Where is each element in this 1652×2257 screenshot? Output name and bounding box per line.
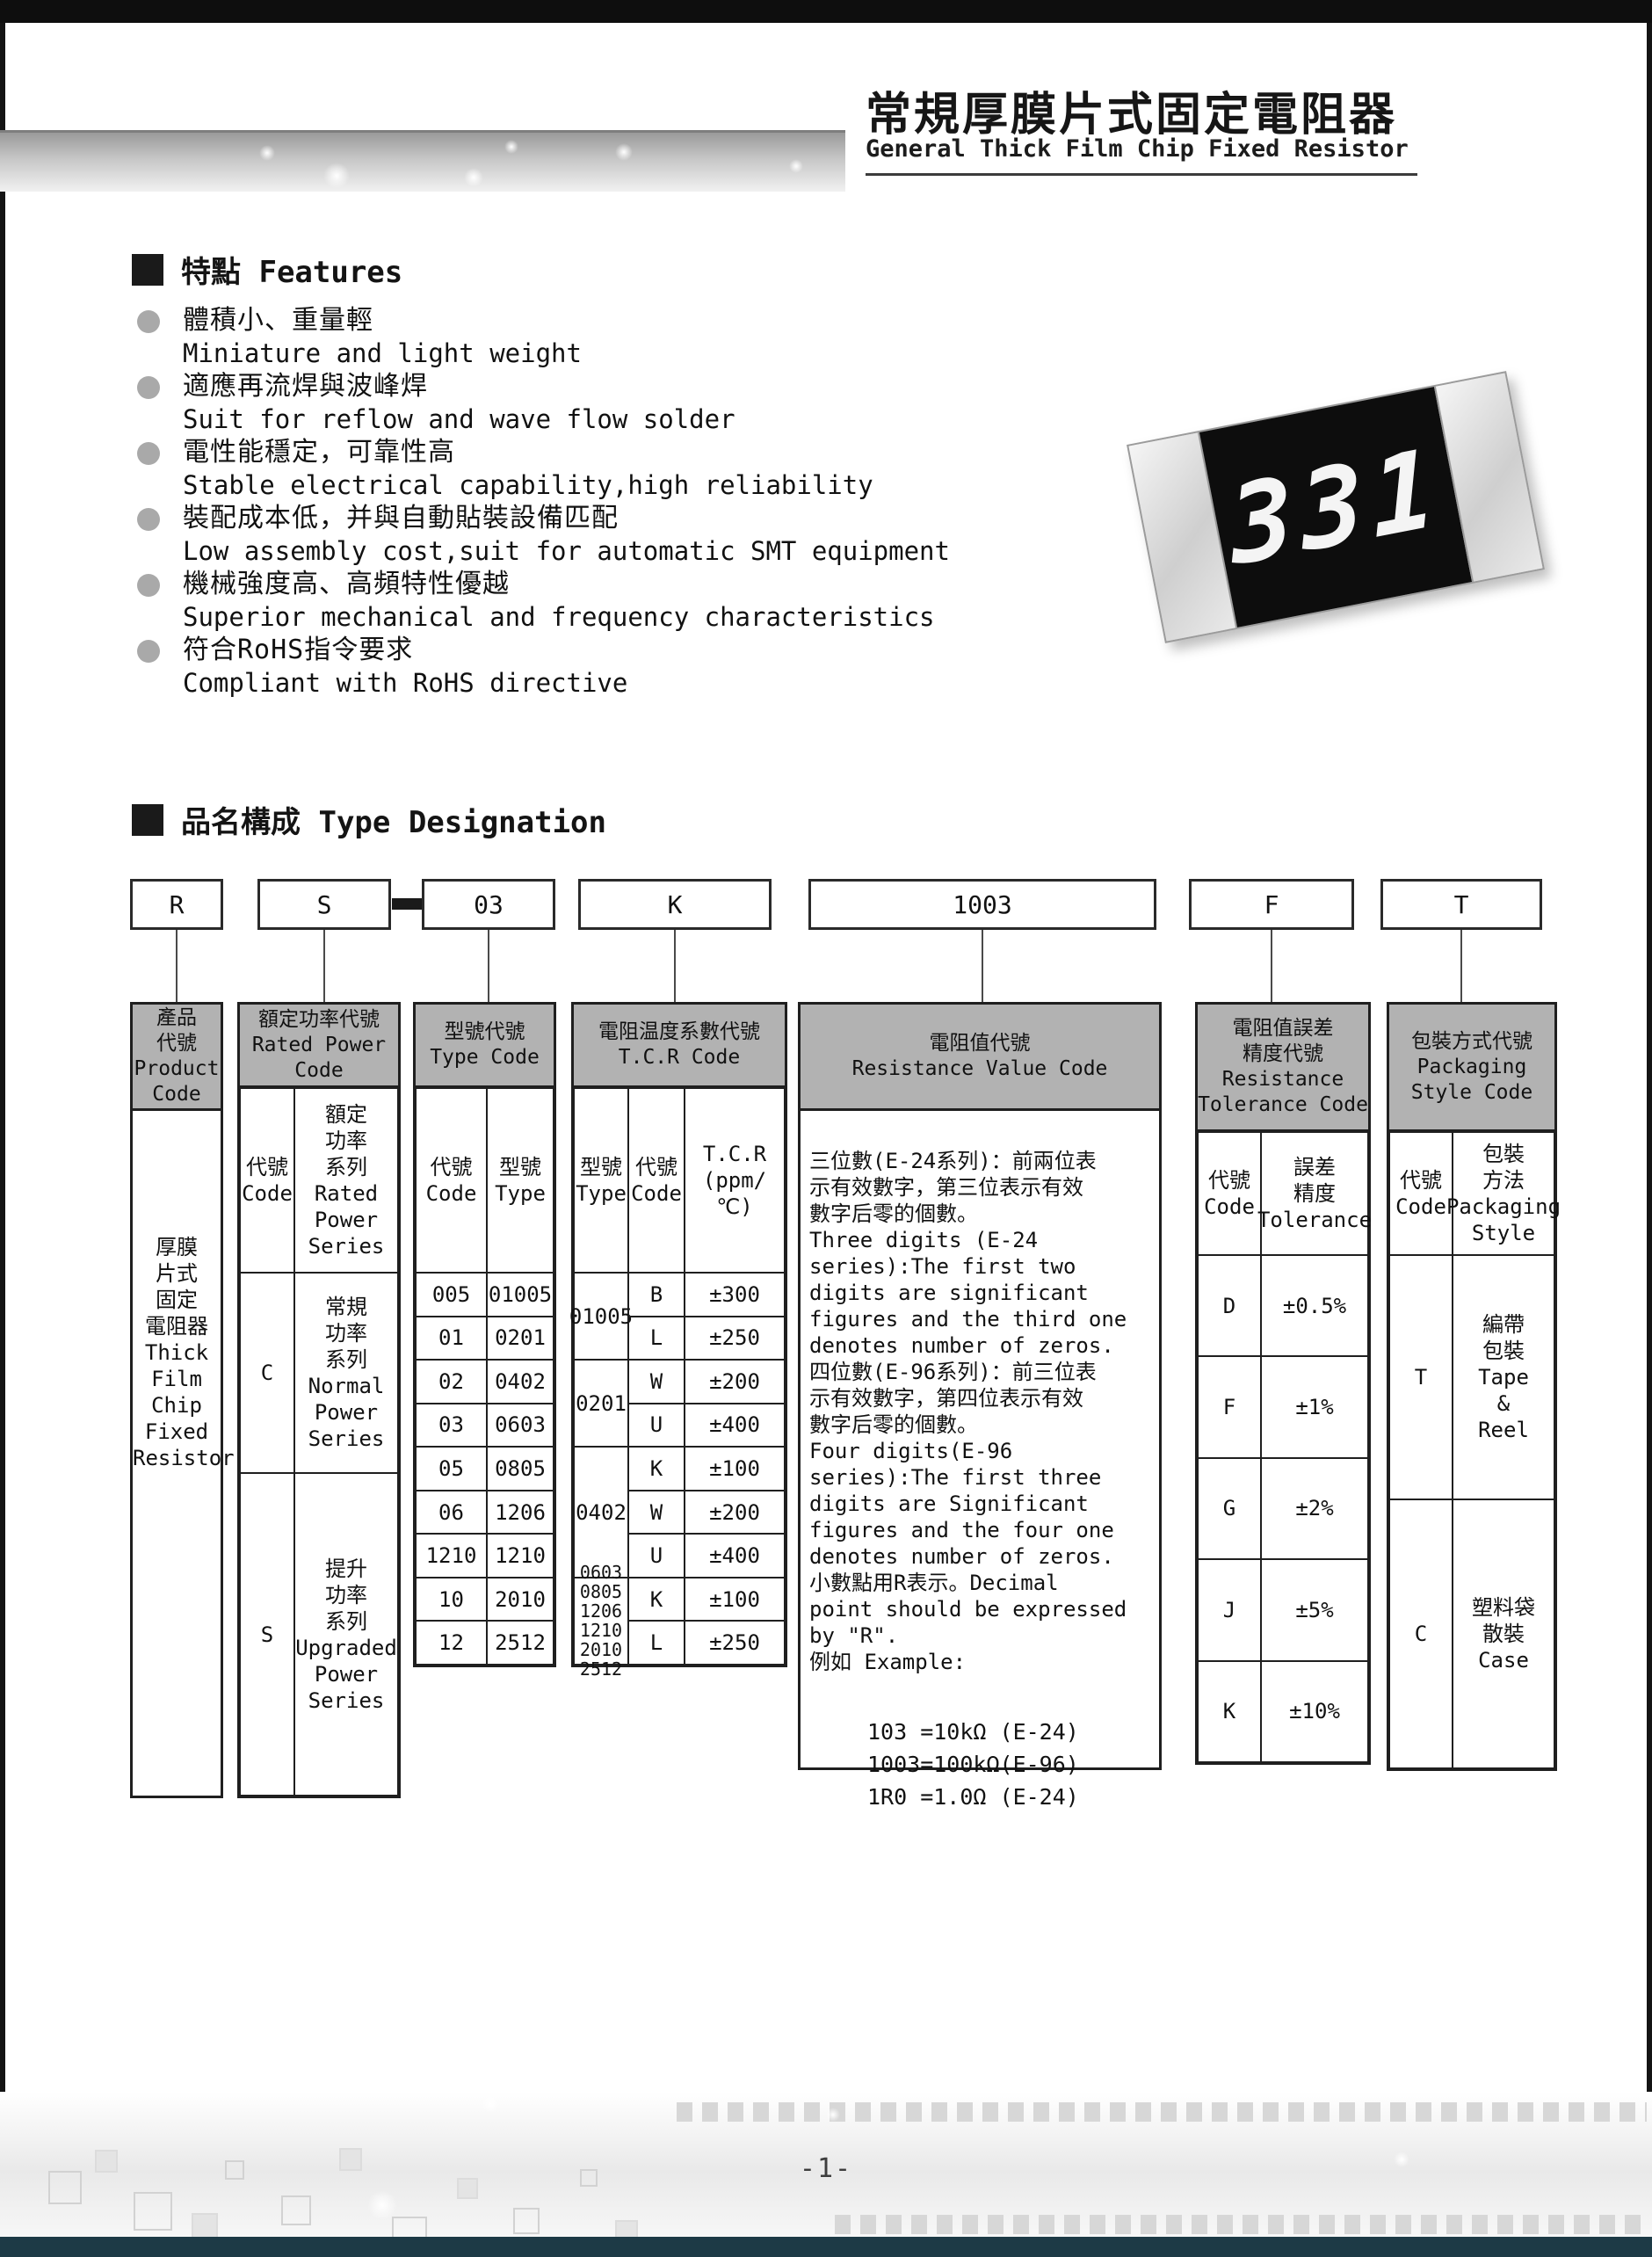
chip-resistor-image: 331 [1127, 371, 1545, 643]
section-square-icon [132, 804, 163, 836]
title-underline [866, 173, 1417, 176]
feature-en: Low assembly cost,suit for automatic SMT… [183, 535, 1098, 568]
decor-square [513, 2208, 540, 2234]
table-cell: C [240, 1273, 294, 1473]
table-cell: W [628, 1360, 685, 1404]
list-item: 體積小、重量輕 Miniature and light weight [132, 304, 1098, 370]
features-heading-label: 特點 Features [181, 248, 402, 291]
table-subheader: 代號 Code [240, 1088, 294, 1273]
bullet-icon [137, 310, 160, 333]
connector-line [674, 930, 676, 1002]
section-square-icon [132, 254, 163, 286]
table-cell: ±300 [685, 1273, 785, 1317]
table-column-product-code: 產品 代號 Product Code 厚膜 片式 固定 電阻器 Thick Fi… [130, 1002, 223, 1798]
bullet-icon [137, 442, 160, 465]
table-cell: 常規 功率 系列 Normal Power Series [294, 1273, 398, 1473]
sparkle-dot [789, 159, 803, 173]
list-item: 機械強度高、高頻特性優越 Superior mechanical and fre… [132, 568, 1098, 634]
list-item: 適應再流焊與波峰焊 Suit for reflow and wave flow … [132, 370, 1098, 436]
sparkle-dot [259, 145, 275, 161]
table-column-resistance-value: 電阻值代號 Resistance Value Code 三位數(E-24系列)：… [798, 1002, 1162, 1770]
feature-zh: 電性能穩定，可靠性高 [183, 436, 1098, 469]
table-cell: U [628, 1534, 685, 1578]
sparkle-dot [615, 143, 633, 161]
feature-en: Miniature and light weight [183, 337, 1098, 370]
bullet-icon [137, 640, 160, 663]
table-cell: 0603 [487, 1404, 554, 1448]
feature-zh: 適應再流焊與波峰焊 [183, 370, 1098, 403]
table-cell: K [1198, 1661, 1261, 1762]
table-cell: D [1198, 1255, 1261, 1356]
sparkle-dot [504, 140, 518, 154]
table-cell: ±400 [685, 1534, 785, 1578]
resistance-description: 三位數(E-24系列)：前兩位表 示有效數字，第三位表示有效 數字后零的個數。 … [809, 1148, 1152, 1675]
table-subheader: 型號 Type [574, 1088, 628, 1273]
feature-en: Suit for reflow and wave flow solder [183, 403, 1098, 436]
table-cell: K [628, 1578, 685, 1622]
feature-zh: 機械強度高、高頻特性優越 [183, 568, 1098, 601]
features-heading: 特點 Features [132, 248, 402, 291]
feature-zh: 體積小、重量輕 [183, 304, 1098, 337]
table-cell: ±100 [685, 1447, 785, 1491]
table-cell: 0402 [574, 1447, 628, 1578]
table-cell: B [628, 1273, 685, 1317]
connector-line [488, 930, 489, 1002]
table-column-type-code: 型號代號 Type Code 代號 Code 型號 Type 005 01005… [413, 1002, 556, 1667]
table-column-rated-power: 額定功率代號 Rated Power Code 代號 Code 額定 功率 系列… [237, 1002, 401, 1798]
table-column-packaging: 包裝方式代號 Packaging Style Code 代號 Code 包裝 方… [1387, 1002, 1557, 1771]
table-cell: ±5% [1261, 1559, 1368, 1660]
table-cell: 01005 [487, 1273, 554, 1317]
table-cell: ±250 [685, 1317, 785, 1361]
column-header: 電阻值誤差 精度代號 Resistance Tolerance Code [1198, 1005, 1368, 1132]
column-header: 額定功率代號 Rated Power Code [240, 1005, 398, 1088]
table-subheader: 誤差 精度 Tolerance [1261, 1132, 1368, 1255]
table-column-tcr: 電阻温度系數代號 T.C.R Code 型號 Type 代號 Code T.C.… [571, 1002, 787, 1667]
table-cell: 0402 [487, 1360, 554, 1404]
page-left-border [0, 23, 5, 2237]
decor-square [192, 2213, 218, 2239]
code-box-tolerance: F [1189, 879, 1354, 930]
table-column-tolerance: 電阻值誤差 精度代號 Resistance Tolerance Code 代號 … [1195, 1002, 1371, 1765]
decor-square [134, 2192, 172, 2231]
page-bottom-bar [0, 2237, 1652, 2257]
column-header: 型號代號 Type Code [416, 1005, 554, 1088]
list-item: 符合RoHS指令要求 Compliant with RoHS directive [132, 634, 1098, 700]
sparkle-dot [464, 168, 483, 187]
table-subheader: 代號 Code [416, 1088, 487, 1273]
table-cell: G [1198, 1458, 1261, 1559]
table-subheader: 代號 Code [1389, 1132, 1453, 1255]
table-cell: U [628, 1404, 685, 1448]
feature-zh: 符合RoHS指令要求 [183, 634, 1098, 667]
table-subheader: 額定 功率 系列 Rated Power Series [294, 1088, 398, 1273]
code-box-resistance: 1003 [808, 879, 1156, 930]
code-box-tcr: K [578, 879, 772, 930]
table-subheader: 代號 Code [1198, 1132, 1261, 1255]
table-cell: W [628, 1491, 685, 1535]
connector-line [323, 930, 325, 1002]
table-cell: 0805 [487, 1447, 554, 1491]
decor-square [281, 2195, 311, 2225]
header-gradient-band [0, 130, 845, 192]
table-cell: ±400 [685, 1404, 785, 1448]
table-subheader: 型號 Type [487, 1088, 554, 1273]
chip-marking: 331 [1225, 425, 1446, 591]
table-cell: 10 [416, 1578, 487, 1622]
table-cell: ±250 [685, 1621, 785, 1665]
column-header: 包裝方式代號 Packaging Style Code [1389, 1005, 1554, 1132]
table-cell: L [628, 1317, 685, 1361]
resistance-examples: 103 =10kΩ (E-24) 1003=100kΩ(E-96) 1R0 =1… [867, 1716, 1152, 1813]
table-cell: 厚膜 片式 固定 電阻器 Thick Film Chip Fixed Resis… [133, 1111, 221, 1796]
table-cell: 02 [416, 1360, 487, 1404]
table-cell: S [240, 1473, 294, 1796]
bullet-icon [137, 508, 160, 531]
feature-en: Compliant with RoHS directive [183, 667, 1098, 700]
chip-body: 331 [1199, 387, 1472, 628]
table-cell: ±200 [685, 1491, 785, 1535]
table-cell: 2010 [487, 1578, 554, 1622]
connector-line [1460, 930, 1462, 1002]
table-cell: C [1389, 1499, 1453, 1768]
page-subtitle: General Thick Film Chip Fixed Resistor [866, 135, 1445, 163]
feature-en: Stable electrical capability,high reliab… [183, 469, 1098, 502]
table-cell: ±0.5% [1261, 1255, 1368, 1356]
connector-line [176, 930, 178, 1002]
type-designation-heading: 品名構成 Type Designation [132, 798, 606, 841]
table-cell: K [628, 1447, 685, 1491]
table-cell: L [628, 1621, 685, 1665]
bullet-icon [137, 376, 160, 399]
table-cell: 1210 [416, 1534, 487, 1578]
sparkle-dot [826, 2108, 840, 2122]
page-number: -1- [0, 2153, 1652, 2184]
feature-en: Superior mechanical and frequency charac… [183, 601, 1098, 634]
table-cell: 0603 0805 1206 1210 2010 2512 [574, 1578, 628, 1665]
sparkle-dot [323, 163, 350, 189]
table-cell: ±1% [1261, 1356, 1368, 1457]
table-cell: 提升 功率 系列 Upgraded Power Series [294, 1473, 398, 1796]
list-item: 裝配成本低，并與自動貼裝設備匹配 Low assembly cost,suit … [132, 502, 1098, 568]
table-cell: ±100 [685, 1578, 785, 1622]
table-cell: ±10% [1261, 1661, 1368, 1762]
table-cell: 06 [416, 1491, 487, 1535]
column-header: 電阻温度系數代號 T.C.R Code [574, 1005, 785, 1088]
list-item: 電性能穩定，可靠性高 Stable electrical capability,… [132, 436, 1098, 502]
table-cell: 塑料袋 散裝 Case [1453, 1499, 1554, 1768]
table-cell: 編帶 包裝 Tape & Reel [1453, 1255, 1554, 1499]
sparkle-dot [482, 2095, 499, 2113]
code-box-power: S [257, 879, 391, 930]
table-cell: ±200 [685, 1360, 785, 1404]
table-cell: 0201 [574, 1360, 628, 1447]
dash-separator [392, 898, 422, 910]
table-cell: 2512 [487, 1621, 554, 1665]
type-designation-heading-label: 品名構成 Type Designation [181, 798, 606, 841]
code-box-type: 03 [422, 879, 555, 930]
table-cell: 01005 [574, 1273, 628, 1360]
table-cell: J [1198, 1559, 1261, 1660]
features-list: 體積小、重量輕 Miniature and light weight 適應再流焊… [132, 304, 1098, 700]
column-header: 產品 代號 Product Code [133, 1005, 221, 1111]
footer-square-strip [677, 2102, 1647, 2122]
footer-square-strip [835, 2215, 1647, 2234]
page-right-border [1647, 23, 1652, 2237]
table-subheader: 代號 Code [628, 1088, 685, 1273]
table-cell: T [1389, 1255, 1453, 1499]
table-cell: F [1198, 1356, 1261, 1457]
table-cell: 1210 [487, 1534, 554, 1578]
table-cell: 三位數(E-24系列)：前兩位表 示有效數字，第三位表示有效 數字后零的個數。 … [801, 1111, 1159, 1840]
page-title: 常規厚膜片式固定電阻器 [866, 77, 1445, 143]
code-box-product: R [130, 879, 223, 930]
table-cell: ±2% [1261, 1458, 1368, 1559]
table-cell: 0201 [487, 1317, 554, 1361]
table-cell: 005 [416, 1273, 487, 1317]
column-header: 電阻值代號 Resistance Value Code [801, 1005, 1159, 1111]
connector-line [1271, 930, 1272, 1002]
page-top-border [0, 0, 1652, 23]
code-box-packaging: T [1380, 879, 1542, 930]
table-cell: 12 [416, 1621, 487, 1665]
bullet-icon [137, 574, 160, 597]
table-cell: 01 [416, 1317, 487, 1361]
table-subheader: 包裝 方法 Packaging Style [1453, 1132, 1554, 1255]
datasheet-page: 常規厚膜片式固定電阻器 General Thick Film Chip Fixe… [0, 0, 1652, 2257]
table-subheader: T.C.R (ppm/℃) [685, 1088, 785, 1273]
feature-zh: 裝配成本低，并與自動貼裝設備匹配 [183, 502, 1098, 535]
table-cell: 03 [416, 1404, 487, 1448]
sparkle-dot [367, 2190, 397, 2220]
table-cell: 1206 [487, 1491, 554, 1535]
table-cell: 05 [416, 1447, 487, 1491]
connector-line [982, 930, 983, 1002]
